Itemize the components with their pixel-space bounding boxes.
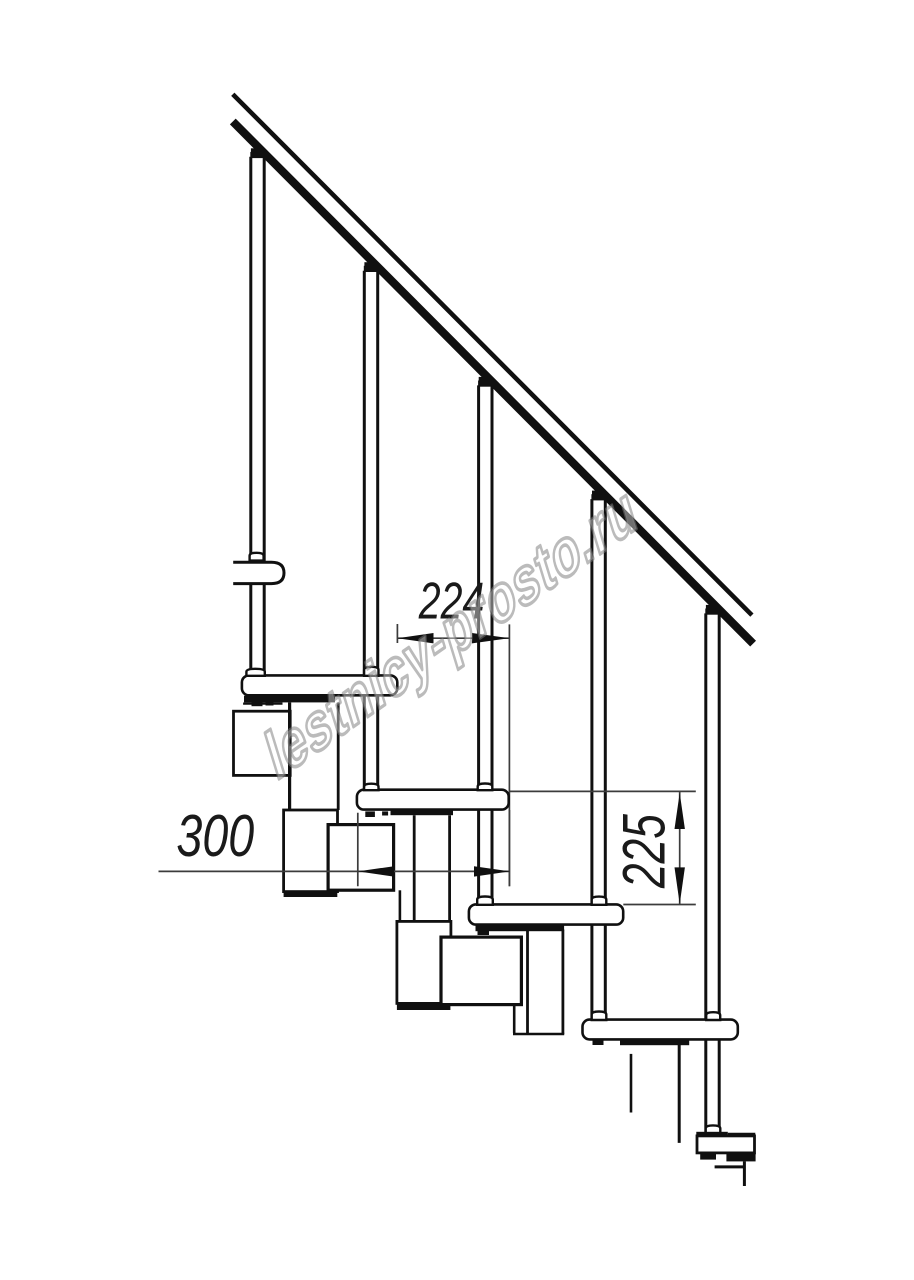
svg-text:300: 300 <box>176 804 254 869</box>
svg-text:225: 225 <box>611 814 678 889</box>
